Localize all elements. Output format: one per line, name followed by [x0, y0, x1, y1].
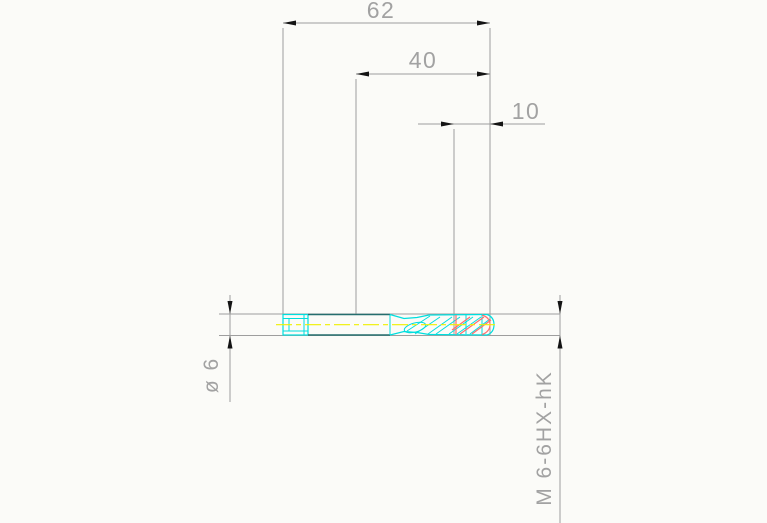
dimension-texts: 62 40 10 ø 6 M 6-6HX-hK	[200, 0, 556, 506]
arrowhead-10-left	[441, 122, 454, 127]
arrowheads	[228, 21, 563, 349]
dimension-lines	[219, 23, 560, 523]
dim-text-overall-length: 62	[367, 0, 396, 23]
flute-bottom-edge	[429, 335, 487, 336]
flute-helix-line	[415, 317, 440, 334]
neck-top-profile	[390, 315, 429, 319]
cad-canvas: 62 40 10 ø 6 M 6-6HX-hK	[0, 0, 767, 523]
neck-bottom-profile	[390, 332, 429, 336]
thread-helix-line	[452, 317, 470, 330]
arrowhead-thread-top	[558, 301, 563, 314]
dim-text-intermediate-length: 40	[409, 47, 438, 73]
thread-helix-line	[460, 317, 484, 334]
arrowhead-10-right	[490, 122, 503, 127]
arrowhead-dia-bottom	[228, 336, 233, 349]
arrowhead-dia-top	[228, 301, 233, 314]
tap-drawing	[276, 315, 498, 336]
dim-text-thread-length: 10	[512, 98, 541, 124]
arrowhead-40-left	[356, 72, 369, 77]
flute-top-edge	[429, 315, 487, 316]
arrowhead-thread-bottom	[558, 336, 563, 349]
thread-spec-text: M 6-6HX-hK	[533, 370, 556, 506]
arrowhead-62-left	[283, 21, 296, 26]
arrowhead-40-right	[477, 72, 490, 77]
arrowhead-62-right	[477, 21, 490, 26]
flute-runout-ellipse	[403, 320, 427, 334]
dim-text-shank-diameter: ø 6	[200, 357, 223, 393]
